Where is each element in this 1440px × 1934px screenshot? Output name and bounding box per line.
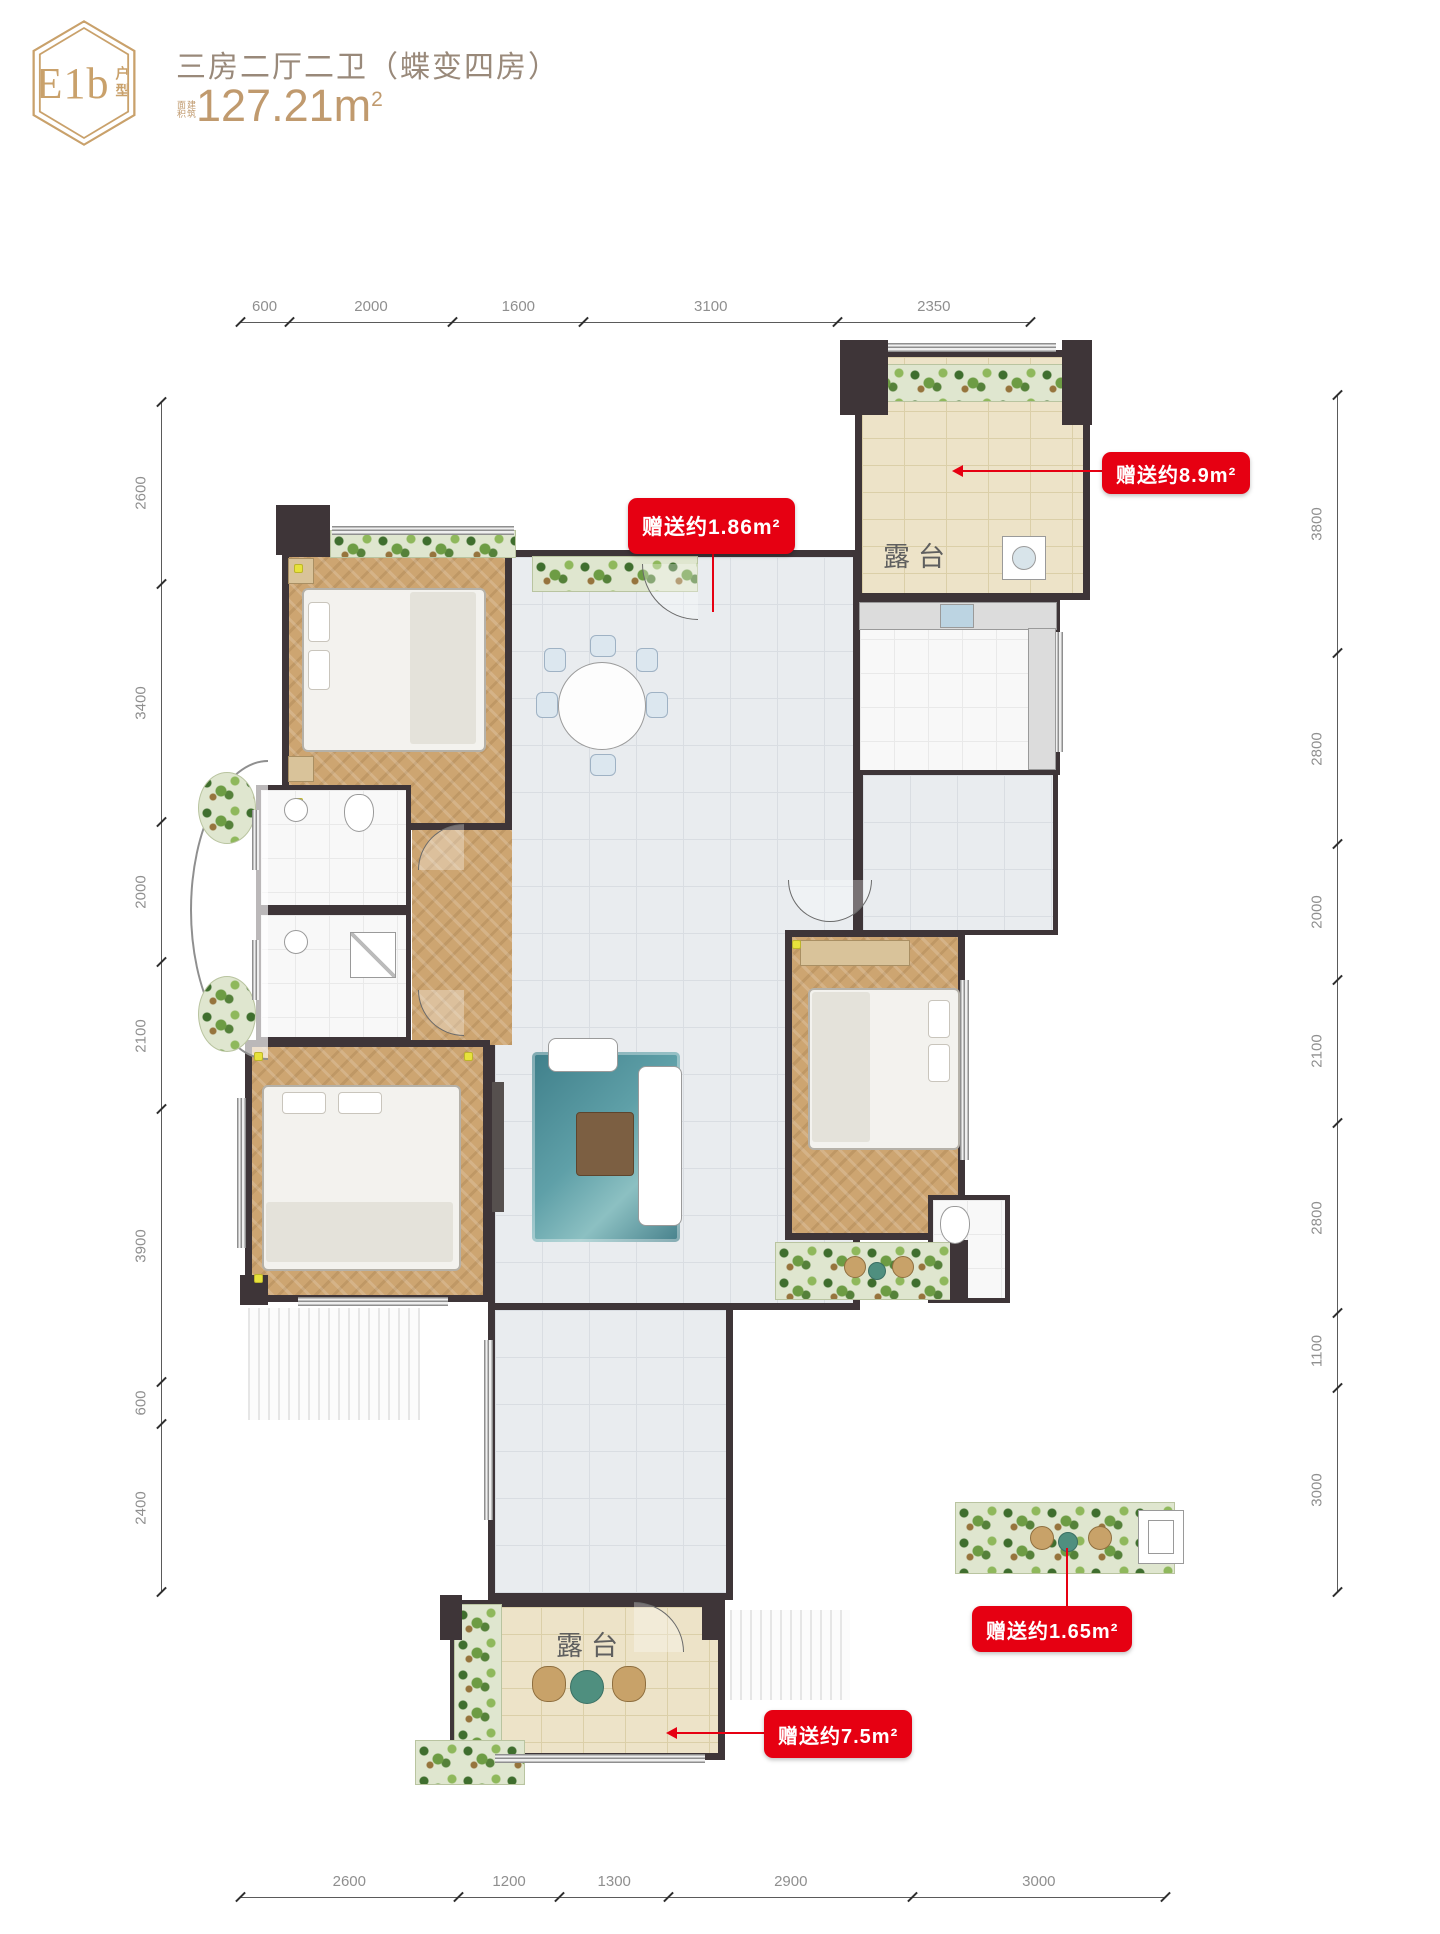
desk <box>800 940 910 966</box>
dimension-value: 2400 <box>133 1491 150 1524</box>
wall-pier <box>702 1595 724 1640</box>
dimension-value: 3100 <box>584 298 838 315</box>
pillow <box>338 1092 382 1114</box>
coffee-table <box>576 1112 634 1176</box>
toilet <box>940 1206 970 1244</box>
unit-type-badge: E1b 户型 <box>28 20 140 146</box>
dimension-tick <box>453 1891 464 1902</box>
ceiling-light <box>792 940 801 949</box>
dimension-chain-left: 260034002000210039006002400 <box>161 402 162 1592</box>
sofa <box>638 1066 682 1226</box>
dimension-value: 2000 <box>1309 895 1326 928</box>
dimension-tick <box>156 397 167 408</box>
terrace-chair <box>612 1666 646 1702</box>
dimension-value: 2600 <box>240 1873 459 1890</box>
dimension-value: 2800 <box>1309 1201 1326 1234</box>
blanket <box>410 592 476 744</box>
dimension-value: 2350 <box>838 298 1030 315</box>
dimension-tick <box>156 957 167 968</box>
dimension-value: 600 <box>240 298 289 315</box>
dimension-tick <box>1332 839 1343 850</box>
flower-bed-terrace-top <box>862 364 1067 402</box>
window <box>252 810 259 870</box>
dimension-value: 1200 <box>459 1873 560 1890</box>
dining-chair <box>646 692 668 718</box>
dimension-tick <box>284 316 295 327</box>
dimension-value: 2000 <box>289 298 453 315</box>
dimension-tick <box>156 1104 167 1115</box>
balcony-chair <box>1088 1526 1112 1550</box>
dimension-value: 2100 <box>133 1019 150 1052</box>
dimension-value: 600 <box>133 1390 150 1415</box>
dining-table <box>558 662 646 750</box>
pillow <box>282 1092 326 1114</box>
dimension-value: 2000 <box>133 875 150 908</box>
blanket <box>266 1202 453 1262</box>
ceiling-light <box>464 1052 473 1061</box>
window <box>495 1754 705 1763</box>
dimension-tick <box>156 579 167 590</box>
balcony-table <box>1058 1532 1078 1552</box>
dining-chair <box>590 635 616 657</box>
window <box>960 980 969 1160</box>
floorplan-page: { "header": { "badge_code": "E1b", "badg… <box>0 0 1440 1934</box>
dimension-tick <box>156 1377 167 1388</box>
callout-leader-2 <box>962 470 1104 472</box>
dimension-tick <box>156 1419 167 1430</box>
dimension-value: 1100 <box>1309 1334 1326 1366</box>
dimension-value: 1300 <box>560 1873 669 1890</box>
window <box>237 1098 246 1248</box>
gift-callout-1-86: 赠送约1.86m² <box>628 498 795 554</box>
dimension-tick <box>1332 1587 1343 1598</box>
pillow <box>308 602 330 642</box>
dimension-tick <box>1025 316 1036 327</box>
hall-lower-extension <box>488 1310 733 1600</box>
callout-leader-4 <box>676 1732 764 1734</box>
ceiling-light <box>294 564 303 573</box>
dimension-tick <box>235 1891 246 1902</box>
dining-chair <box>636 648 658 672</box>
terrace-top-label: 露台 <box>883 535 953 574</box>
toilet <box>344 794 374 832</box>
dimension-tick <box>579 316 590 327</box>
dimension-tick <box>1332 1383 1343 1394</box>
wall-pier <box>950 1240 968 1302</box>
dimension-tick <box>448 316 459 327</box>
dimension-value: 3800 <box>1309 508 1326 541</box>
dimension-tick <box>1160 1891 1171 1902</box>
dimension-tick <box>907 1891 918 1902</box>
armchair <box>548 1038 618 1072</box>
kitchen-counter-side <box>1028 628 1056 770</box>
kitchen-sink <box>940 604 974 628</box>
area-value: 127.21m <box>196 82 371 130</box>
dimension-tick <box>1332 975 1343 986</box>
callout-leader-1 <box>712 554 714 612</box>
dimension-value: 3000 <box>1309 1473 1326 1506</box>
area-prefix: 建筑面积 <box>176 100 196 122</box>
dimension-tick <box>1332 390 1343 401</box>
balcony-chair <box>844 1256 866 1278</box>
dimension-tick <box>235 316 246 327</box>
dimension-value: 2600 <box>133 476 150 509</box>
terrace-table <box>570 1670 604 1704</box>
hall-right-passage <box>858 775 1058 935</box>
dimension-value: 3400 <box>133 686 150 719</box>
dimension-tick <box>664 1891 675 1902</box>
window <box>484 1340 493 1520</box>
gift-callout-7-5: 赠送约7.5m² <box>764 1710 912 1758</box>
washing-machine-drum <box>1012 546 1036 570</box>
bathroom-sink <box>284 930 308 954</box>
bathroom-sink <box>284 798 308 822</box>
balcony-chair <box>892 1256 914 1278</box>
plants-curved-bay-top <box>198 772 256 844</box>
dimension-chain-bottom: 26001200130029003000 <box>240 1897 1165 1898</box>
wall-pier <box>440 1595 462 1640</box>
hatch-area-below-bedroom <box>248 1308 420 1420</box>
wall-pier <box>840 340 888 415</box>
callout-leader-3 <box>1066 1548 1068 1606</box>
dimension-value: 2100 <box>1309 1035 1326 1068</box>
hatch-area-right-of-terrace <box>730 1610 850 1700</box>
dimension-value: 2800 <box>1309 732 1326 765</box>
dining-chair <box>544 648 566 672</box>
dimension-chain-right: 3800280020002100280011003000 <box>1337 395 1338 1592</box>
dimension-tick <box>156 817 167 828</box>
planter-box-inner <box>1148 1520 1174 1554</box>
pillow <box>928 1044 950 1082</box>
window <box>298 1297 448 1306</box>
dimension-tick <box>554 1891 565 1902</box>
gift-callout-1-65: 赠送约1.65m² <box>972 1606 1132 1652</box>
window <box>332 526 514 535</box>
wall-pier <box>1062 340 1092 425</box>
floor-plan: 露台 露台 <box>240 340 1188 1770</box>
gift-callout-8-9: 赠送约8.9m² <box>1102 452 1250 494</box>
ceiling-light <box>254 1274 263 1283</box>
nightstand <box>288 756 314 782</box>
pillow <box>928 1000 950 1038</box>
area-row: 建筑面积 127.21m 2 <box>176 82 383 130</box>
window <box>252 940 259 1000</box>
dimension-tick <box>1332 1117 1343 1128</box>
dining-chair <box>590 754 616 776</box>
dimension-tick <box>1332 648 1343 659</box>
dimension-tick <box>1332 1308 1343 1319</box>
terrace-chair <box>532 1666 566 1702</box>
pillow <box>308 650 330 690</box>
dimension-tick <box>156 1587 167 1598</box>
wall-pier <box>276 505 330 555</box>
dimension-value: 3000 <box>913 1873 1165 1890</box>
dimension-chain-top: 6002000160031002350 <box>240 322 1030 323</box>
unit-code: E1b <box>36 58 110 109</box>
area-superscript: 2 <box>371 90 383 110</box>
shower <box>350 932 396 978</box>
bathroom-1 <box>256 785 411 910</box>
dimension-value: 2900 <box>669 1873 913 1890</box>
tv-cabinet <box>492 1082 504 1212</box>
ceiling-light <box>254 1052 263 1061</box>
blanket <box>812 992 870 1142</box>
dimension-value: 3900 <box>133 1229 150 1262</box>
plants-curved-bay-bottom <box>198 976 256 1052</box>
dining-chair <box>536 692 558 718</box>
terrace-bottom-label: 露台 <box>556 1624 626 1663</box>
dimension-tick <box>832 316 843 327</box>
window <box>888 343 1056 352</box>
dimension-value: 1600 <box>453 298 584 315</box>
balcony-chair <box>1030 1526 1054 1550</box>
balcony-table <box>868 1262 886 1280</box>
